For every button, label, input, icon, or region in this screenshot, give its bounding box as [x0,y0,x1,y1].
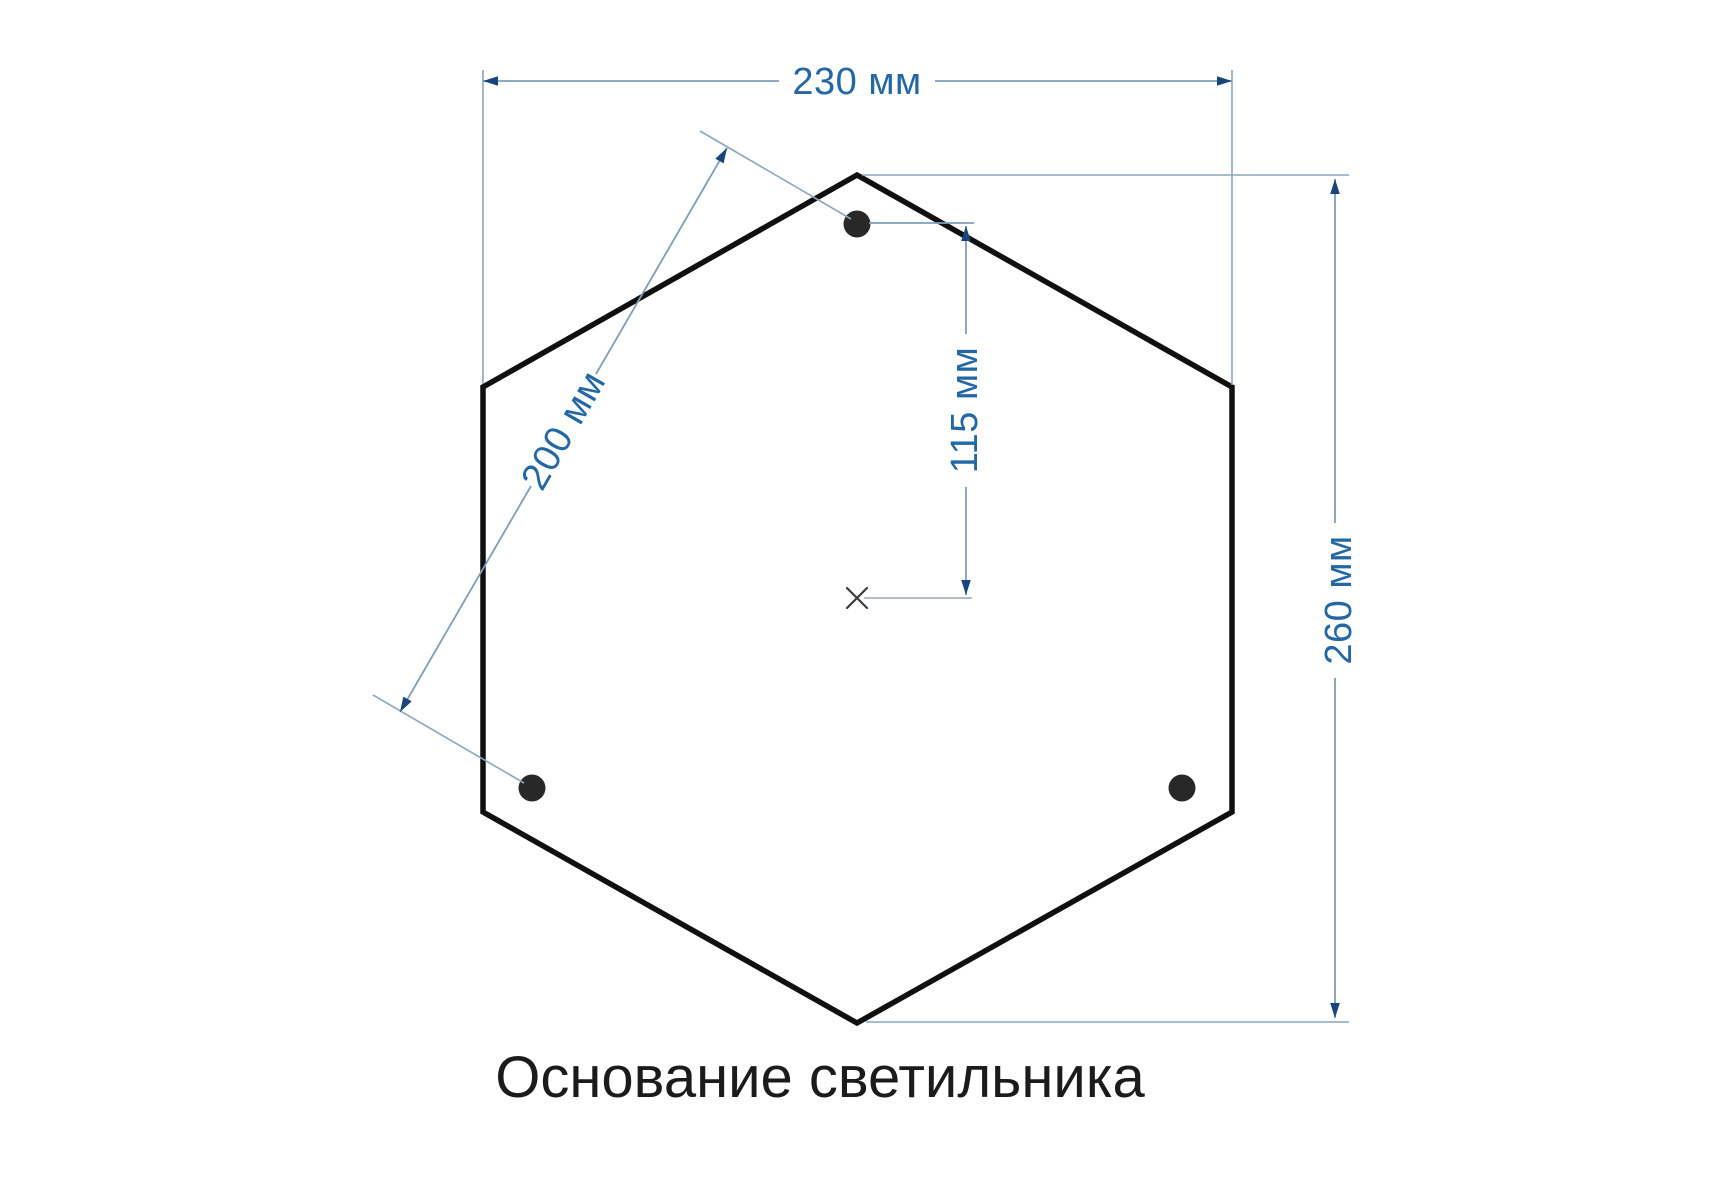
drawing-title: Основание светильника [495,1045,1145,1110]
dimension-height-label: 260 мм [1318,535,1360,664]
dimension-arrow [483,76,498,86]
technical-drawing-canvas: 230 мм 200 мм 115 мм [0,0,1715,1200]
dimension-hole-spacing-label: 200 мм [513,364,614,497]
dimension-hole-offset-115: 115 мм [864,223,986,598]
dimension-width-label: 230 мм [792,61,921,103]
dimension-line [400,486,531,712]
mounting-hole-bottom-right [1169,775,1196,802]
lamp-base-drawing-page: 230 мм 200 мм 115 мм [0,0,1715,1200]
dimension-arrow [396,697,412,715]
dimension-hole-spacing-200: 200 мм [373,131,851,783]
dimension-arrow [1330,179,1340,194]
dimension-arrow [1330,1003,1340,1018]
mounting-hole-bottom-left [519,775,546,802]
dimension-hole-offset-label: 115 мм [944,347,986,473]
dimension-arrow [1217,76,1232,86]
extension-line [700,131,851,219]
mounting-hole-top [844,211,871,238]
dimension-arrow [961,580,971,595]
extension-line [373,695,524,783]
